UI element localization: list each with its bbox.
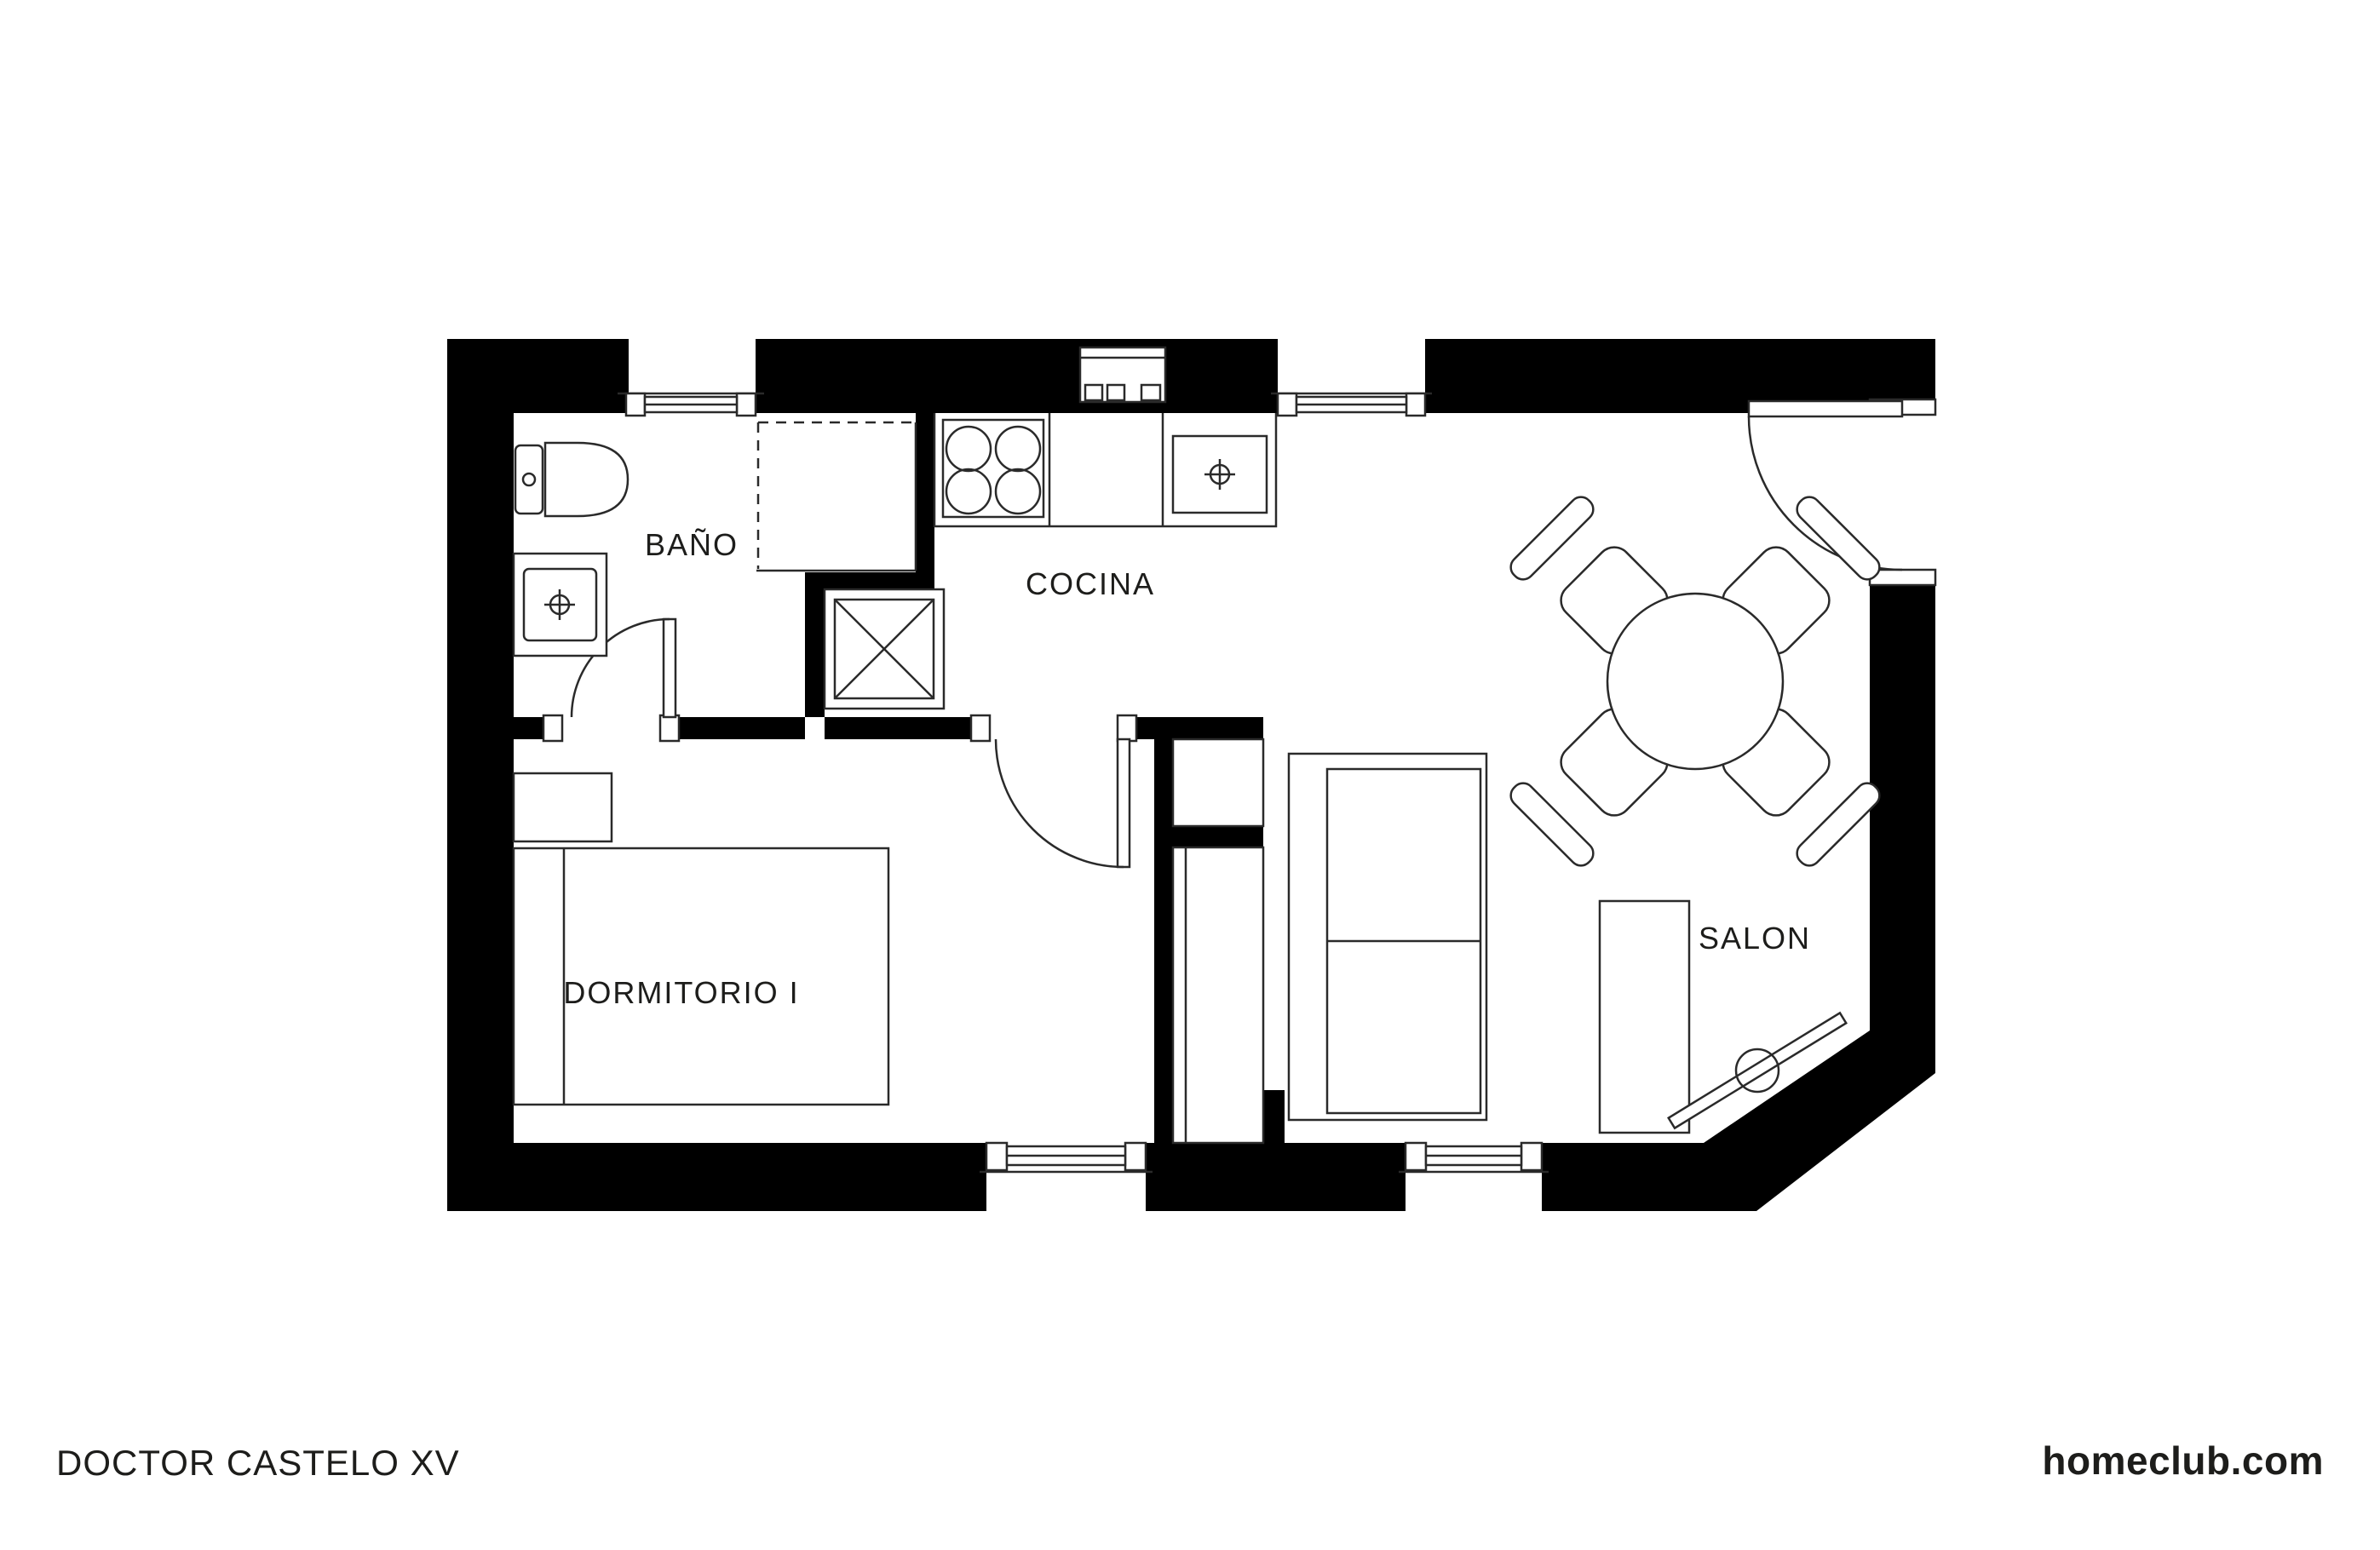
- wall-bottom-a: [447, 1143, 986, 1211]
- door-leaf: [1118, 739, 1130, 867]
- bathroom-fixtures: [514, 422, 944, 709]
- wall-wardrobe-stub: [1263, 1090, 1285, 1143]
- boiler-niche-icon: [1080, 347, 1165, 402]
- wall-left: [447, 413, 514, 1211]
- window-jamb: [1406, 393, 1425, 416]
- wall-bedroom-right: [1154, 717, 1173, 1143]
- toilet-icon: [515, 443, 628, 516]
- label-bano: BAÑO: [645, 527, 739, 562]
- project-title: DOCTOR CASTELO XV: [56, 1443, 460, 1484]
- door-jamb: [1118, 715, 1136, 741]
- salon-furniture: [1289, 492, 1884, 1133]
- label-salon: SALON: [1699, 921, 1811, 956]
- kitchen-sink-icon: [1173, 436, 1267, 513]
- niche-connector: [1141, 385, 1160, 400]
- fridge-body: [1173, 739, 1263, 826]
- label-cocina: COCINA: [1026, 566, 1155, 601]
- window-top-bathroom: [618, 393, 764, 416]
- door-swing-arc: [996, 739, 1124, 867]
- floor-plan: BAÑO COCINA DORMITORIO I SALON: [0, 0, 2380, 1550]
- toilet-flush-button: [523, 474, 535, 485]
- door-leaf: [1749, 401, 1902, 416]
- sofa-icon: [1289, 754, 1486, 1120]
- wall-right: [1870, 585, 1935, 1073]
- window-jamb: [1278, 393, 1296, 416]
- door-jamb: [971, 715, 990, 741]
- fridge-icon: [1173, 739, 1263, 826]
- niche-connector: [1085, 385, 1102, 400]
- window-jamb: [737, 393, 756, 416]
- wall-bath-bottom-r: [660, 717, 805, 739]
- niche-connector: [1107, 385, 1124, 400]
- window-jamb: [1521, 1143, 1542, 1170]
- ventilation-shaft-icon: [825, 589, 944, 709]
- brand-wordmark: homeclub.com: [2042, 1438, 2324, 1484]
- window-jamb: [626, 393, 645, 416]
- wall-column-connector: [1173, 826, 1263, 847]
- wall-bath-kitchen: [916, 413, 934, 589]
- window-jamb: [1125, 1143, 1146, 1170]
- wardrobe-icon: [1173, 847, 1263, 1143]
- window-jamb: [1406, 1143, 1426, 1170]
- window-bottom-bedroom: [980, 1143, 1153, 1172]
- label-dormitorio: DORMITORIO I: [563, 975, 799, 1010]
- window-jamb: [986, 1143, 1007, 1170]
- wall-hall-top-l: [825, 717, 971, 739]
- nightstand-icon: [514, 773, 612, 841]
- stove-icon: [943, 420, 1043, 517]
- window-top-kitchen: [1271, 393, 1432, 416]
- wall-top-left-corner: [447, 339, 629, 413]
- door-leaf: [664, 619, 675, 717]
- coffee-table-icon: [1600, 901, 1689, 1133]
- wall-shaft-left: [805, 589, 825, 717]
- bedroom-door-icon: [971, 715, 1136, 867]
- shower-icon: [756, 422, 916, 571]
- vanity-sink-icon: [514, 554, 606, 656]
- floorplan-page: { "canvas": { "width": 2794, "height": 1…: [0, 0, 2380, 1550]
- wall-bath-se-band: [805, 572, 934, 589]
- dining-table-icon: [1607, 594, 1783, 769]
- wall-top-a: [756, 339, 1278, 413]
- toilet-bowl: [545, 443, 628, 516]
- door-jamb: [660, 715, 679, 741]
- wall-bottom-b: [1146, 1143, 1406, 1211]
- window-bottom-salon: [1399, 1143, 1549, 1172]
- bedroom-furniture: [514, 773, 1263, 1143]
- wall-chamfer: [1704, 1030, 1935, 1211]
- door-jamb: [543, 715, 562, 741]
- door-jamb: [1870, 570, 1935, 585]
